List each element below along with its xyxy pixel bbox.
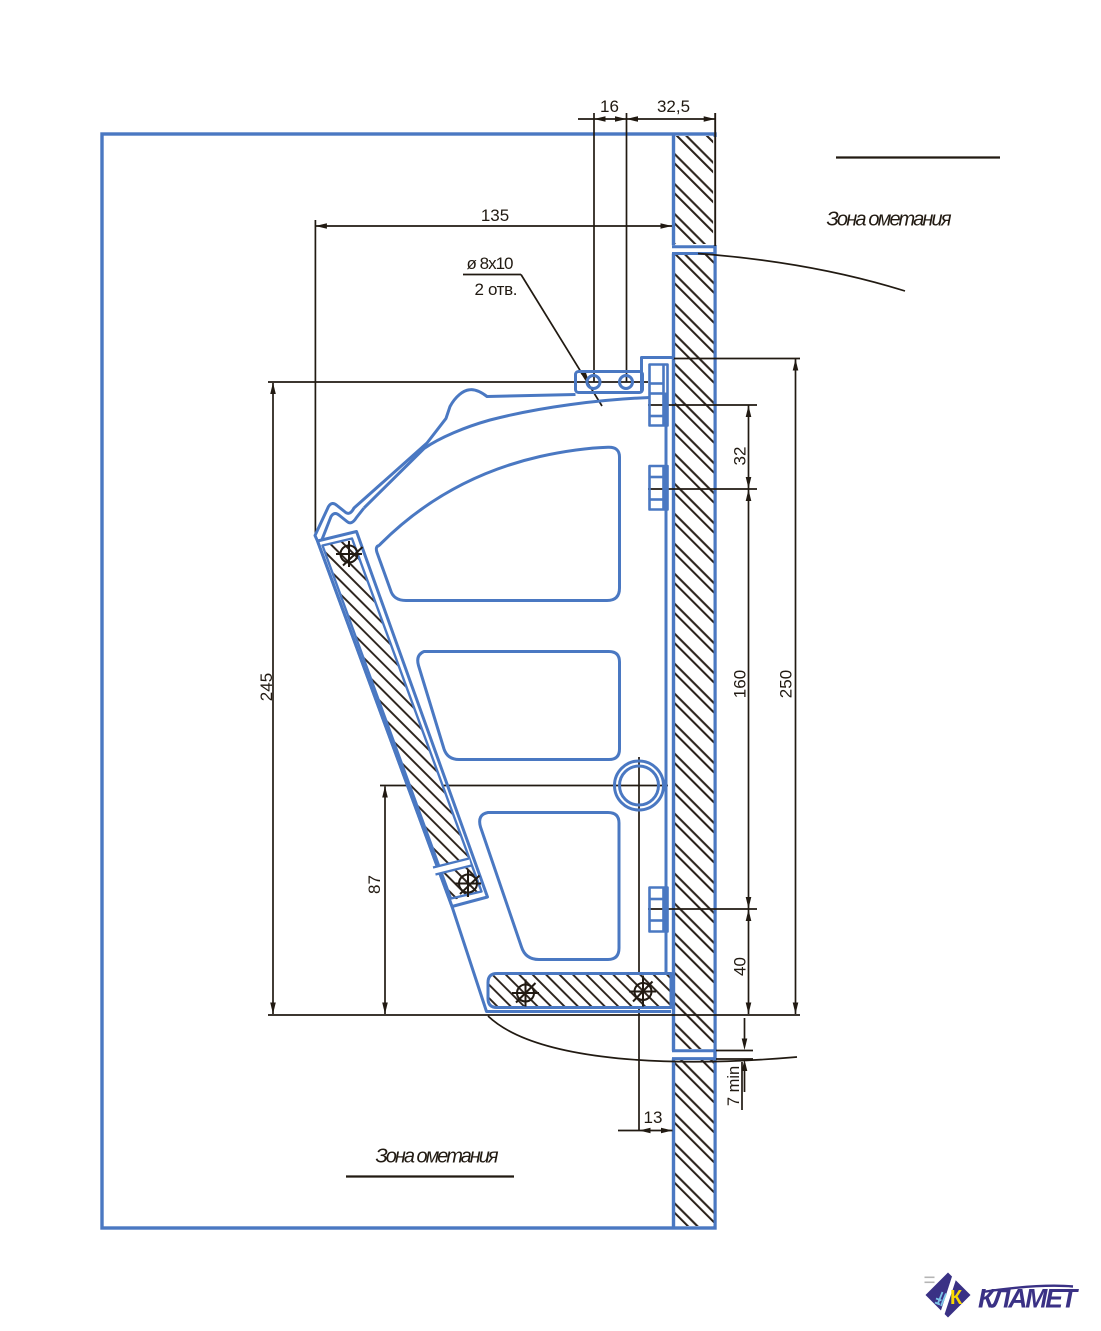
svg-text:ø 8x10: ø 8x10 <box>467 254 514 273</box>
svg-text:Зона ометания: Зона ометания <box>827 209 952 231</box>
svg-text:250: 250 <box>777 670 796 698</box>
svg-text:16: 16 <box>600 97 619 116</box>
svg-text:7 min: 7 min <box>725 1066 743 1106</box>
svg-text:40: 40 <box>731 957 750 976</box>
svg-text:32: 32 <box>731 447 750 466</box>
svg-text:К: К <box>950 1287 963 1309</box>
svg-text:32,5: 32,5 <box>657 97 690 116</box>
svg-text:135: 135 <box>481 206 509 225</box>
svg-text:2 отв.: 2 отв. <box>475 280 518 299</box>
svg-text:Зона ометания: Зона ометания <box>376 1146 499 1168</box>
svg-text:87: 87 <box>365 875 384 894</box>
svg-text:КЛАМЕТ: КЛАМЕТ <box>978 1284 1080 1314</box>
svg-text:245: 245 <box>257 673 276 701</box>
svg-text:160: 160 <box>731 670 750 698</box>
svg-text:13: 13 <box>644 1108 663 1127</box>
